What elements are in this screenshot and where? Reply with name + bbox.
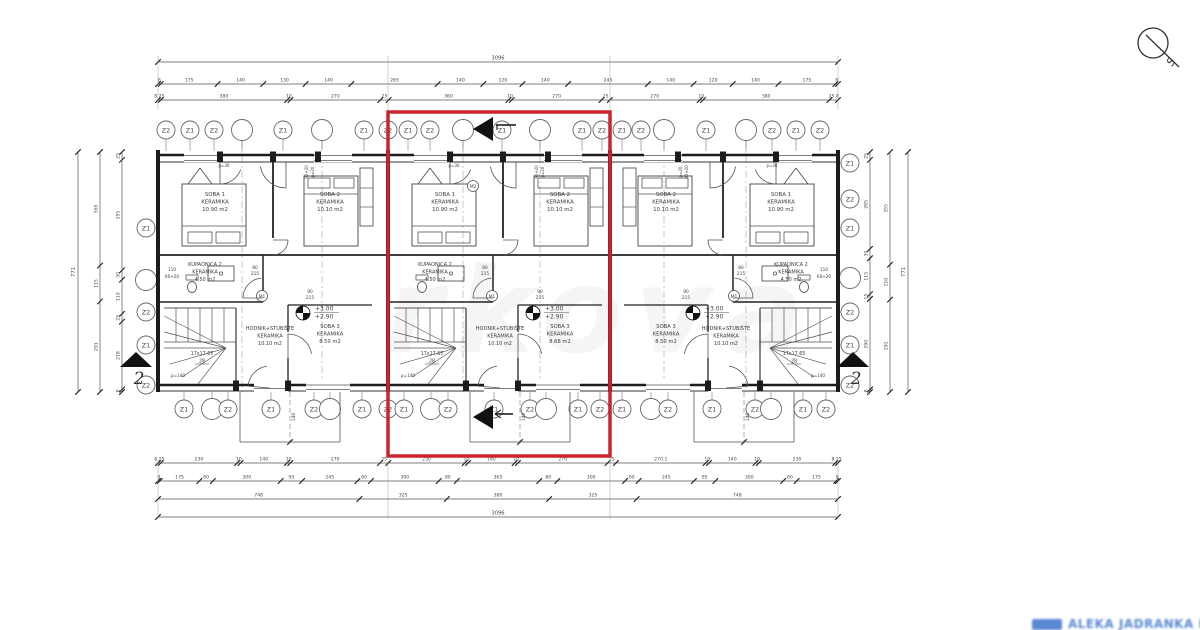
plan-text: 365 bbox=[494, 474, 503, 480]
plan-text: 30 bbox=[863, 251, 869, 257]
plan-text: 8 bbox=[158, 77, 161, 83]
plan-text: p=20 bbox=[678, 166, 683, 177]
plan-text: 215 bbox=[536, 295, 544, 301]
plan-text: 3096 bbox=[491, 55, 504, 61]
grid-marker: Z2 bbox=[219, 400, 237, 418]
dimension-chain: 8.25230101401027025230101401027025270.11… bbox=[154, 456, 842, 465]
plan-text: +2.90 bbox=[545, 314, 564, 321]
plan-text: Z1 bbox=[360, 126, 368, 134]
plan-text: KUPAONICA 2 bbox=[418, 262, 452, 268]
plan-shape bbox=[188, 232, 212, 243]
dimension-chain: 2528530115152908 bbox=[863, 149, 872, 395]
grid-marker: Z1 bbox=[262, 400, 280, 418]
machine-marker: M1 bbox=[487, 291, 498, 302]
plan-text: 60+20 bbox=[817, 274, 832, 279]
compass-label: S bbox=[1164, 55, 1179, 68]
plan-text: Z1 bbox=[498, 126, 506, 134]
plan-text: 60 bbox=[361, 474, 367, 480]
plan-text: 10 bbox=[507, 93, 513, 99]
plan-text: Z2 bbox=[751, 405, 759, 413]
grid-marker bbox=[761, 399, 782, 420]
plan-shape bbox=[232, 120, 253, 141]
room-labels: SOBA 1KERAMIKA10.90 m2SOBA 2KERAMIKA10.1… bbox=[188, 192, 344, 347]
plan-text: 120 bbox=[709, 77, 718, 83]
plan-shape bbox=[784, 168, 796, 184]
plan-text: HODNIK+STUBIŠTE bbox=[702, 325, 750, 332]
plan-text: 300 bbox=[745, 474, 754, 480]
plan-shape bbox=[308, 178, 330, 188]
dimension-chain: 771 bbox=[71, 149, 81, 395]
plan-shape bbox=[538, 178, 560, 188]
plan-text: 25 bbox=[382, 93, 388, 99]
grid-marker: Z2 bbox=[811, 121, 829, 139]
plan-text: SOBA 2 bbox=[320, 192, 340, 198]
plan-text: Z2 bbox=[210, 126, 218, 134]
machine-marker: M1 bbox=[257, 291, 268, 302]
grid-marker: Z1 bbox=[841, 219, 859, 237]
plan-shape bbox=[761, 399, 782, 420]
plan-text: KERAMIKA bbox=[192, 270, 218, 276]
plan-text: 140 bbox=[236, 77, 245, 83]
plan-text: 140 bbox=[728, 456, 737, 462]
grid-marker: Z1 bbox=[355, 121, 373, 139]
plan-text: 270 bbox=[552, 93, 561, 99]
plan-text: 380 bbox=[220, 93, 229, 99]
grid-marker: Z1 bbox=[697, 121, 715, 139]
plan-shape bbox=[200, 168, 212, 184]
plan-text: HODNIK+STUBIŠTE bbox=[246, 325, 294, 332]
plan-shape bbox=[840, 268, 861, 289]
floor-plan-drawing: rkova 3096817514013014026514012014024514… bbox=[0, 0, 1200, 630]
plan-shape bbox=[285, 381, 291, 392]
plan-shape bbox=[320, 399, 341, 420]
plan-text: KERAMIKA bbox=[487, 334, 513, 340]
grid-marker bbox=[736, 120, 757, 141]
plan-text: Z1 bbox=[846, 159, 854, 167]
plan-text: 95 bbox=[288, 474, 294, 480]
grid-marker: Z1 bbox=[181, 121, 199, 139]
section-number-left: 2 bbox=[133, 369, 145, 389]
plan-shape bbox=[590, 168, 603, 226]
plan-text: 10 bbox=[698, 93, 704, 99]
plan-text: KERAMIKA bbox=[546, 200, 574, 206]
grid-marker: Z2 bbox=[439, 400, 457, 418]
grid-marker: Z2 bbox=[841, 190, 859, 208]
plan-text: +3.00 bbox=[315, 306, 334, 313]
plan-text: 10 bbox=[704, 456, 710, 462]
grid-marker bbox=[320, 399, 341, 420]
plan-text: Z1 bbox=[279, 126, 287, 134]
grid-marker bbox=[840, 268, 861, 289]
plan-text: 25.8 bbox=[829, 93, 839, 99]
plan-text: 25 bbox=[115, 153, 121, 159]
plan-text: 17x17.65 bbox=[421, 351, 444, 357]
plan-text: KERAMIKA bbox=[778, 270, 804, 276]
plan-shape bbox=[306, 381, 350, 392]
plan-text: 10.90 m2 bbox=[202, 207, 228, 213]
grid-marker: Z2 bbox=[421, 121, 439, 139]
plan-text: 270 bbox=[331, 456, 340, 462]
plan-text: 10 bbox=[754, 456, 760, 462]
dimension-chain: 8.25380102702536010270252701038025.8 bbox=[154, 93, 841, 102]
entry-arrow-bottom-icon bbox=[473, 405, 493, 429]
plan-text: 290 bbox=[863, 340, 869, 349]
machine-marker: M1 bbox=[729, 291, 740, 302]
plan-text: M2 bbox=[470, 184, 477, 190]
plan-shape bbox=[796, 168, 808, 184]
plan-shape bbox=[642, 178, 662, 188]
plan-shape bbox=[484, 381, 518, 392]
sink-icon bbox=[219, 272, 222, 275]
plan-text: Z2 bbox=[526, 405, 534, 413]
plan-text: Z1 bbox=[404, 126, 412, 134]
level-marker: +3.00+2.90 bbox=[526, 306, 569, 321]
grid-marker bbox=[312, 120, 333, 141]
plan-shape bbox=[623, 168, 636, 226]
plan-text: Z1 bbox=[578, 126, 586, 134]
plan-shape bbox=[312, 120, 333, 141]
plan-shape bbox=[500, 152, 506, 163]
dimension-chain: 8175603009524560300803658030060245953006… bbox=[155, 474, 841, 483]
plan-shape bbox=[515, 381, 521, 392]
plan-text: 3096 bbox=[491, 510, 504, 516]
door-arc bbox=[288, 334, 312, 358]
plan-text: Z2 bbox=[846, 308, 854, 316]
plan-text: KERAMIKA bbox=[713, 334, 739, 340]
plan-text: 10.10 m2 bbox=[317, 207, 343, 213]
plan-text: 291 bbox=[883, 341, 889, 350]
plan-text: 360 bbox=[444, 93, 453, 99]
plan-text: 300 bbox=[242, 474, 251, 480]
plan-text: 215 bbox=[306, 295, 314, 301]
plan-text: p=30 bbox=[767, 163, 778, 168]
plan-text: 8 bbox=[863, 389, 869, 392]
plan-text: Z1 bbox=[702, 126, 710, 134]
plan-text: 140 bbox=[259, 456, 268, 462]
plan-text: 8.50 m2 bbox=[319, 339, 341, 345]
plan-shape bbox=[773, 152, 779, 163]
plan-text: 10 bbox=[286, 93, 292, 99]
plan-text: 90+20 bbox=[534, 165, 539, 179]
plan-shape bbox=[641, 399, 662, 420]
grid-marker: Z1 bbox=[703, 400, 721, 418]
plan-shape bbox=[136, 270, 157, 291]
plan-text: M1 bbox=[259, 294, 266, 300]
plan-text: 90+20 bbox=[304, 165, 309, 179]
plan-text: KERAMIKA bbox=[767, 200, 795, 206]
plan-text: Z1 bbox=[846, 341, 854, 349]
plan-text: 10.10 m2 bbox=[714, 341, 738, 347]
plan-text: SOBA 2 bbox=[550, 192, 570, 198]
plan-shape bbox=[720, 152, 726, 163]
plan-text: Z1 bbox=[186, 126, 194, 134]
plan-text: 8.25 bbox=[832, 456, 842, 462]
plan-text: 130 bbox=[280, 77, 289, 83]
grid-marker: Z2 bbox=[205, 121, 223, 139]
plan-text: 245 bbox=[325, 474, 334, 480]
plan-shape bbox=[646, 381, 690, 392]
plan-text: 300 bbox=[400, 474, 409, 480]
plan-text: Z2 bbox=[444, 405, 452, 413]
porch-outline: 140 bbox=[694, 392, 794, 445]
grid-marker: Z2 bbox=[632, 121, 650, 139]
plan-text: 140 bbox=[666, 77, 675, 83]
level-marker: +3.00+2.90 bbox=[686, 306, 729, 321]
plan-text: 4.50 m2 bbox=[195, 277, 216, 283]
plan-text: p=140 bbox=[811, 373, 825, 378]
plan-text: 115 bbox=[93, 279, 99, 288]
plan-shape bbox=[315, 152, 321, 163]
plan-shape bbox=[430, 168, 442, 184]
grid-marker: Z2 bbox=[841, 303, 859, 321]
plan-shape bbox=[233, 381, 239, 392]
plan-text: 4.50 m2 bbox=[425, 277, 446, 283]
grid-marker: Z1 bbox=[787, 121, 805, 139]
plan-text: 25 bbox=[863, 153, 869, 159]
door-arc bbox=[273, 240, 288, 255]
plan-shape bbox=[360, 168, 373, 226]
plan-text: 10 bbox=[236, 456, 242, 462]
grid-marker: Z1 bbox=[395, 400, 413, 418]
plan-text: SOBA 3 bbox=[320, 324, 339, 330]
plan-text: 355 bbox=[883, 204, 889, 213]
plan-text: KERAMIKA bbox=[201, 200, 229, 206]
compass-circle bbox=[1138, 28, 1168, 58]
plan-text: 10 bbox=[286, 456, 292, 462]
plan-text: 90 bbox=[307, 289, 313, 295]
plan-shape bbox=[463, 381, 469, 392]
plan-text: 115 bbox=[863, 272, 869, 281]
floor-plan-page: rkova 3096817514013014026514012014024514… bbox=[0, 0, 1200, 630]
section-triangle-right-icon bbox=[837, 352, 869, 367]
plan-text: 771 bbox=[71, 267, 77, 277]
plan-text: 270 bbox=[331, 93, 340, 99]
plan-text: p=30 bbox=[219, 163, 230, 168]
plan-text: 10.10 m2 bbox=[488, 341, 512, 347]
plan-text: 285 bbox=[863, 200, 869, 209]
plan-text: 30 bbox=[115, 272, 121, 278]
watermark-bottom-right: ALEKA JADRANKA DJENĐ bbox=[1032, 617, 1200, 630]
plan-text: p=20 bbox=[540, 166, 545, 177]
plan-text: Z1 bbox=[267, 405, 275, 413]
plan-text: Z2 bbox=[426, 126, 434, 134]
plan-text: 10.90 m2 bbox=[768, 207, 794, 213]
dimension-chain: 2535530110252188 bbox=[115, 149, 124, 395]
plan-text: +2.90 bbox=[705, 314, 724, 321]
plan-text: KERAMIKA bbox=[257, 334, 283, 340]
plan-text: 215 bbox=[682, 295, 690, 301]
grid-marker: Z2 bbox=[591, 400, 609, 418]
plan-text: 80 bbox=[252, 265, 258, 271]
plan-text: KERAMIKA bbox=[547, 332, 574, 338]
watermark-text: ALEKA JADRANKA DJENĐ bbox=[1068, 617, 1200, 630]
plan-text: M1 bbox=[489, 294, 496, 300]
plan-text: 245 bbox=[604, 77, 613, 83]
grid-marker: Z2 bbox=[137, 303, 155, 321]
grid-marker: Z1 bbox=[841, 154, 859, 172]
plan-text: Z2 bbox=[310, 405, 318, 413]
plan-text: KERAMIKA bbox=[652, 200, 680, 206]
section-number-right: 2 bbox=[850, 369, 862, 389]
plan-text: 748 bbox=[254, 492, 263, 498]
plan-text: SOBA 1 bbox=[435, 192, 455, 198]
plan-text: 175 bbox=[812, 474, 821, 480]
plan-text: Z1 bbox=[358, 405, 366, 413]
plan-text: 140 bbox=[745, 413, 751, 422]
grid-marker: Z1 bbox=[353, 400, 371, 418]
grid-marker: Z1 bbox=[613, 400, 631, 418]
grid-marker bbox=[421, 399, 442, 420]
plan-text: Z2 bbox=[822, 405, 830, 413]
watermark-logo bbox=[1032, 619, 1062, 630]
plan-text: Z2 bbox=[162, 126, 170, 134]
north-compass-icon: S bbox=[1138, 28, 1179, 69]
level-marker: +3.00+2.90 bbox=[296, 306, 339, 321]
plan-shape bbox=[254, 381, 288, 392]
plan-shape bbox=[530, 120, 551, 141]
plan-text: 230 bbox=[793, 456, 802, 462]
plan-text: p=140 bbox=[171, 373, 185, 378]
dimension-chain: 8175140130140265140120140245140120140175… bbox=[155, 77, 841, 86]
plan-text: SOBA 3 bbox=[656, 324, 675, 330]
plan-text: 120 bbox=[498, 77, 507, 83]
plan-shape bbox=[536, 399, 557, 420]
plan-text: 90 bbox=[537, 289, 543, 295]
plan-text: 175 bbox=[185, 77, 194, 83]
plan-text: 8.68 m2 bbox=[549, 339, 571, 345]
plan-text: 60 bbox=[629, 474, 635, 480]
grid-marker: Z1 bbox=[274, 121, 292, 139]
plan-text: M1 bbox=[731, 294, 738, 300]
plan-shape bbox=[418, 168, 430, 184]
plan-text: Z1 bbox=[142, 224, 150, 232]
plan-text: SOBA 2 bbox=[656, 192, 676, 198]
plan-text: 60 bbox=[787, 474, 793, 480]
grid-marker: Z1 bbox=[569, 400, 587, 418]
plan-text: KERAMIKA bbox=[422, 270, 448, 276]
plan-text: +3.00 bbox=[545, 306, 564, 313]
plan-text: Z2 bbox=[664, 405, 672, 413]
grid-marker bbox=[530, 120, 551, 141]
plan-text: p=20 bbox=[310, 166, 315, 177]
plan-shape bbox=[164, 316, 226, 348]
plan-text: KERAMIKA bbox=[653, 332, 680, 338]
plan-text: SOBA 3 bbox=[550, 324, 569, 330]
plan-shape bbox=[736, 120, 757, 141]
plan-text: SOBA 1 bbox=[205, 192, 225, 198]
plan-text: 25 bbox=[115, 315, 121, 321]
plan-text: 771 bbox=[901, 267, 907, 277]
plan-text: KUPAONICA 2 bbox=[188, 262, 222, 268]
grid-marker bbox=[641, 399, 662, 420]
plan-text: 10.10 m2 bbox=[547, 207, 573, 213]
plan-text: +3.00 bbox=[705, 306, 724, 313]
dimension-chain: 3096 bbox=[155, 510, 841, 519]
plan-text: 110 bbox=[168, 267, 176, 272]
plan-text: Z1 bbox=[846, 224, 854, 232]
plan-text: 291 bbox=[93, 342, 99, 351]
plan-shape bbox=[675, 152, 681, 163]
grid-marker bbox=[232, 120, 253, 141]
plan-text: 245 bbox=[662, 474, 671, 480]
dimension-chain: 771 bbox=[901, 149, 911, 395]
dimension-chain: 355110291 bbox=[883, 149, 892, 395]
plan-text: 10.90 m2 bbox=[432, 207, 458, 213]
plan-text: 110 bbox=[820, 267, 828, 272]
plan-text: Z2 bbox=[224, 405, 232, 413]
grid-marker: Z2 bbox=[817, 400, 835, 418]
grid-marker bbox=[453, 120, 474, 141]
grid-marker: Z1 bbox=[841, 336, 859, 354]
dimension-chain: 365115291 bbox=[93, 149, 102, 395]
grid-marker bbox=[536, 399, 557, 420]
plan-shape bbox=[708, 381, 742, 392]
plan-text: 175 bbox=[175, 474, 184, 480]
plan-text: Z1 bbox=[708, 405, 716, 413]
plan-text: Z1 bbox=[574, 405, 582, 413]
plan-text: 60+20 bbox=[165, 274, 180, 279]
plan-text: 380 bbox=[494, 492, 503, 498]
grid-marker: Z2 bbox=[763, 121, 781, 139]
plan-shape bbox=[545, 152, 551, 163]
plan-text: 380 bbox=[762, 93, 771, 99]
grid-marker: Z2 bbox=[659, 400, 677, 418]
plan-text: p=30 bbox=[449, 163, 460, 168]
plan-text: 175 bbox=[802, 77, 811, 83]
grid-marker bbox=[654, 120, 675, 141]
plan-text: Z2 bbox=[846, 195, 854, 203]
plan-text: Z1 bbox=[792, 126, 800, 134]
plan-text: p=140 bbox=[401, 373, 415, 378]
plan-text: 4.50 m2 bbox=[781, 277, 802, 283]
plan-shape bbox=[536, 381, 580, 392]
plan-text: 270.1 bbox=[654, 456, 667, 462]
plan-shape bbox=[447, 152, 453, 163]
grid-marker: Z2 bbox=[157, 121, 175, 139]
plan-text: KERAMIKA bbox=[431, 200, 459, 206]
grid-marker: Z1 bbox=[399, 121, 417, 139]
plan-text: 80 bbox=[482, 265, 488, 271]
plan-text: 140 bbox=[751, 77, 760, 83]
plan-text: 60 bbox=[203, 474, 209, 480]
plan-text: 15 bbox=[863, 294, 869, 300]
plan-text: 215 bbox=[251, 271, 259, 277]
dimension-chain: 3096 bbox=[155, 55, 841, 64]
grid-marker: Z1 bbox=[137, 219, 155, 237]
plan-shape bbox=[216, 232, 240, 243]
dimension-chain: 748325380325748 bbox=[155, 492, 841, 501]
plan-text: Z2 bbox=[637, 126, 645, 134]
grid-marker: Z1 bbox=[137, 336, 155, 354]
plan-shape bbox=[164, 332, 226, 348]
plan-shape bbox=[334, 178, 354, 188]
plan-text: 80 bbox=[545, 474, 551, 480]
plan-text: Z2 bbox=[596, 405, 604, 413]
plan-shape bbox=[217, 152, 223, 163]
grid-marker bbox=[136, 270, 157, 291]
plan-shape bbox=[421, 399, 442, 420]
plan-shape bbox=[296, 306, 303, 313]
plan-shape bbox=[188, 168, 200, 184]
plan-text: 25 bbox=[603, 93, 609, 99]
plan-text: 215 bbox=[481, 271, 489, 277]
plan-text: 140 bbox=[521, 413, 527, 422]
plan-text: Z2 bbox=[142, 308, 150, 316]
grid-marker: Z1 bbox=[175, 400, 193, 418]
plan-text: KUPAONICA 2 bbox=[774, 262, 808, 268]
plan-text: Z1 bbox=[618, 126, 626, 134]
plan-text: 140 bbox=[456, 77, 465, 83]
